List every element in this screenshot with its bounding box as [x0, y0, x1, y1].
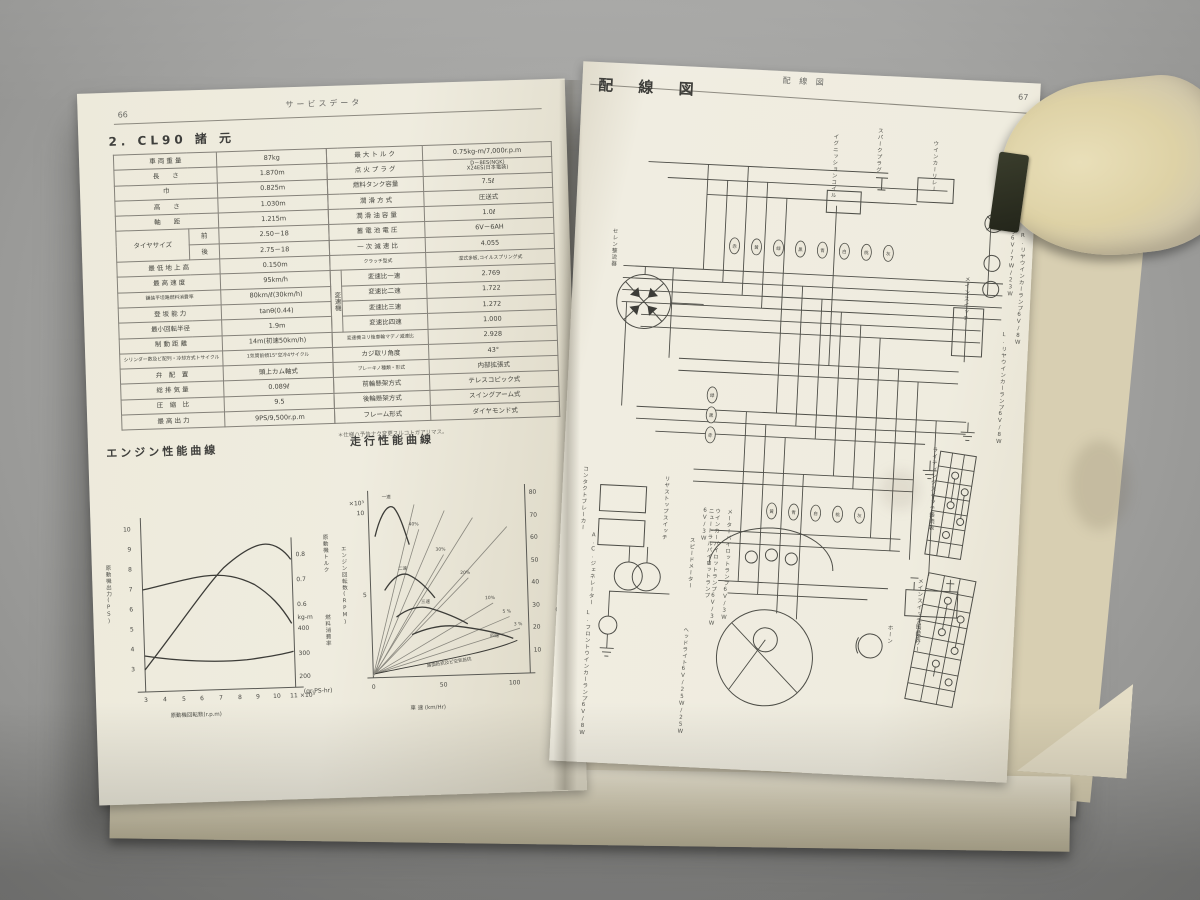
wiring-diagram-title: 配 線 図: [598, 74, 704, 100]
spec-table-left: 車 両 重 量87kg 長 さ1.870m 巾0.825m 高 さ1.030m …: [113, 148, 336, 431]
resistance-curve: [374, 640, 518, 673]
page-stain: [880, 470, 920, 510]
left-page: 66 サービスデータ 2. CL90 諸 元 車 両 重 量87kg 長 さ1.…: [77, 79, 587, 806]
svg-text:100: 100: [509, 679, 521, 686]
svg-text:0.6: 0.6: [297, 601, 307, 608]
svg-text:3 %: 3 %: [514, 621, 523, 627]
svg-text:黒: 黒: [798, 247, 803, 253]
svg-text:10: 10: [273, 693, 281, 700]
svg-text:10%: 10%: [485, 595, 496, 601]
driving-performance-chart: 走行性能曲線 ×10³ 10 5 80 70 60 50 40: [336, 427, 578, 764]
svg-text:二速: 二速: [398, 566, 408, 572]
svg-text:黒: 黒: [709, 413, 714, 419]
svg-text:30: 30: [532, 602, 540, 609]
svg-text:5: 5: [130, 626, 134, 633]
svg-text:赤: 赤: [732, 244, 737, 250]
grade-line-30: [372, 555, 448, 674]
right-page-number: 67: [1018, 93, 1029, 102]
svg-text:5: 5: [182, 696, 186, 703]
svg-text:400: 400: [298, 625, 310, 632]
force-curve-gear4: [412, 624, 513, 642]
ac-generator: [614, 545, 662, 591]
svg-text:50: 50: [531, 557, 539, 564]
driving-chart-ylabel-left: エンジン回転数(RPM): [339, 546, 347, 627]
svg-text:3: 3: [131, 666, 135, 673]
svg-text:6: 6: [200, 695, 204, 702]
driving-chart-title: 走行性能曲線: [350, 431, 434, 450]
engine-chart-ylabel-left: 原動機出力(PS): [104, 565, 111, 626]
svg-text:300: 300: [299, 650, 311, 657]
svg-text:80: 80: [529, 489, 537, 496]
right-page-header: 配 線 図: [782, 75, 827, 88]
torque-curve: [142, 573, 292, 628]
wiring-horizontal-buses: [608, 161, 1008, 606]
rpm-line-gear3: [368, 518, 477, 676]
horn: [855, 633, 882, 658]
engine-chart-title: エンジン性能曲線: [106, 442, 218, 462]
svg-text:4: 4: [163, 696, 167, 703]
driving-chart-plot: ×10³ 10 5 80 70 60 50 40 30 20 10 0: [337, 455, 578, 748]
engine-chart-ylabel-fuel: 燃料消費率: [323, 614, 330, 647]
svg-text:7: 7: [219, 695, 223, 702]
fuel-consumption-curve: [145, 651, 294, 663]
wiring-diagram: 赤 黄 緑 黒 青 白 桃 灰 緑 黒 赤 黄 青 白 桃 灰: [561, 104, 1031, 750]
svg-text:赤: 赤: [708, 433, 713, 439]
engine-chart-plot: 10 9 8 7 6 5 4 3 0.8 0.7 0.6 kg-m: [101, 464, 346, 753]
svg-text:60: 60: [530, 534, 538, 541]
engine-performance-chart: エンジン性能曲線 10 9 8 7 6 5 4 3 0.8: [100, 438, 346, 775]
svg-text:10: 10: [534, 647, 542, 654]
svg-text:×10³: ×10³: [300, 692, 316, 699]
svg-text:200: 200: [299, 673, 311, 680]
svg-text:40%: 40%: [409, 521, 420, 527]
force-curve-gear1: [374, 506, 409, 546]
resistance-label: 路面抵抗及ビ空気抵抗: [426, 655, 472, 669]
svg-text:0: 0: [372, 684, 376, 691]
svg-text:6: 6: [129, 606, 133, 613]
svg-text:10: 10: [357, 510, 365, 517]
right-page: 配 線 図 67 配 線 図: [549, 61, 1041, 783]
svg-text:9: 9: [256, 693, 260, 700]
rear-winker-lamp-right: [984, 255, 1001, 272]
svg-text:0.7: 0.7: [296, 576, 306, 583]
force-curve-gear3: [396, 606, 468, 626]
svg-text:10: 10: [123, 526, 131, 533]
rpm-line-gear2: [368, 511, 449, 676]
svg-text:8: 8: [238, 694, 242, 701]
svg-text:四速: 四速: [490, 633, 500, 639]
svg-text:20: 20: [533, 624, 541, 631]
svg-text:7: 7: [129, 586, 133, 593]
left-page-header: サービスデータ: [285, 97, 362, 110]
svg-text:11: 11: [290, 692, 298, 699]
force-curve-gear2: [384, 573, 435, 599]
rear-stop-switch-box: [598, 519, 645, 547]
headlight: [714, 608, 815, 709]
svg-text:40: 40: [531, 579, 539, 586]
driving-chart-left-ticks: ×10³ 10 5: [349, 500, 368, 599]
selenium-rectifier: [615, 265, 705, 331]
svg-text:70: 70: [529, 512, 537, 519]
driving-chart-right-ticks: 80 70 60 50 40 30 20 10: [529, 489, 542, 654]
engine-chart-x-ticks: 3 4 5 6 7 8 9 10 11 ×10³: [144, 692, 316, 704]
left-page-number: 66: [117, 110, 127, 119]
wiring-vertical-wires: [612, 161, 994, 628]
svg-text:50: 50: [440, 681, 448, 688]
svg-text:三速: 三速: [421, 599, 431, 605]
svg-text:9: 9: [127, 546, 131, 553]
page-stain: [1070, 440, 1130, 530]
contact-breaker-box: [599, 485, 646, 513]
engine-chart-torque-ticks: 0.8 0.7 0.6 kg-m: [295, 551, 313, 621]
svg-text:4: 4: [130, 646, 134, 653]
engine-chart-xlabel: 原動機回転数(r.p.m): [170, 710, 222, 720]
svg-text:5: 5: [363, 592, 367, 599]
left-header-rule: [114, 108, 542, 125]
svg-text:kg-m: kg-m: [297, 614, 313, 621]
driving-chart-x-ticks: 0 50 100: [372, 679, 521, 691]
spec-table: 車 両 重 量87kg 長 さ1.870m 巾0.825m 高 さ1.030m …: [113, 141, 560, 431]
photo-of-open-service-manual: 66 サービスデータ 2. CL90 諸 元 車 両 重 量87kg 長 さ1.…: [0, 0, 1200, 900]
spec-table-right: 最 大 ト ル ク0.75kg-m/7,000r.p.m 点 火 プ ラ グD－…: [326, 141, 561, 424]
svg-text:30%: 30%: [435, 546, 446, 552]
engine-chart-left-ticks: 10 9 8 7 6 5 4 3: [123, 526, 135, 673]
svg-text:一速: 一速: [382, 494, 392, 500]
wire-connectors: 赤 黄 緑 黒 青 白 桃 灰 緑 黒 赤 黄 青 白 桃 灰: [701, 237, 893, 524]
front-winker-lamp: [597, 591, 669, 659]
grade-labels: 40% 30% 20% 10% 5 % 3 %: [409, 518, 524, 630]
svg-text:5 %: 5 %: [502, 608, 511, 614]
svg-text:×10³: ×10³: [349, 500, 365, 507]
svg-text:20%: 20%: [460, 570, 471, 576]
section-title: 2. CL90 諸 元: [108, 129, 235, 150]
power-curve: [141, 543, 294, 670]
rpm-line-gear1: [368, 504, 419, 675]
svg-text:3: 3: [144, 697, 148, 704]
svg-text:8: 8: [128, 566, 132, 573]
driving-chart-xlabel: 車 速 (km/Hr): [410, 703, 446, 712]
svg-text:0.8: 0.8: [295, 551, 305, 558]
engine-chart-ylabel-torque: 原動機トルク: [321, 534, 328, 573]
